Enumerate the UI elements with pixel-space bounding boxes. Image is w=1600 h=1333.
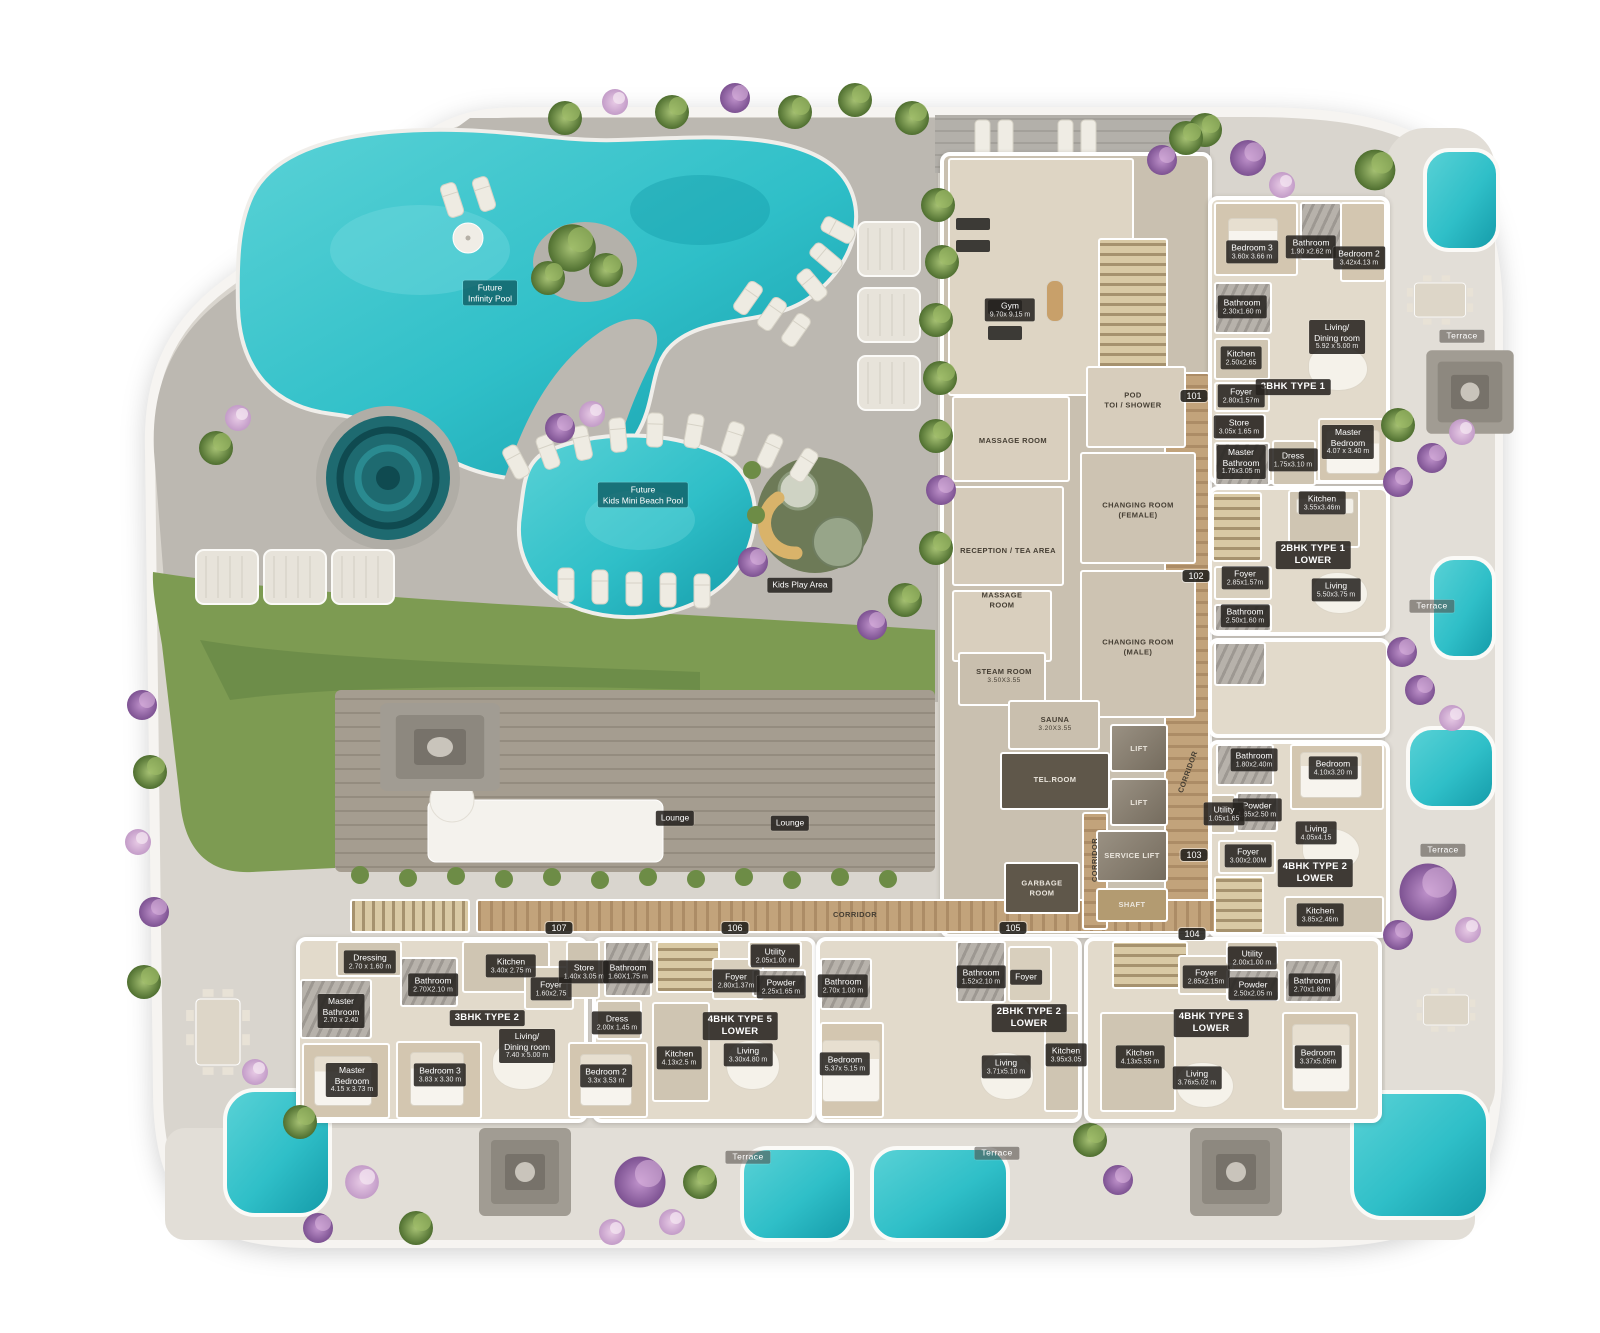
label-u3-bath: Bathroom1.80x2.40m — [1231, 748, 1278, 771]
label-u3-kitchen: Kitchen3.85x2.46m — [1297, 903, 1344, 926]
gym-equipment — [988, 326, 1022, 340]
label-u7-kitchen: Kitchen4.13x5.55 m — [1116, 1045, 1165, 1068]
pool-island — [533, 222, 637, 302]
label-u3-utility: Utility1.05x1.65 — [1204, 802, 1245, 825]
u5-stairs — [656, 941, 720, 993]
label-u7-bedroom: Bedroom3.37x5.05m — [1295, 1045, 1342, 1068]
label-unit-3bhk-type2: 3BHK TYPE 2 — [450, 1010, 525, 1026]
label-corridor-bottom: CORRIDOR — [833, 910, 877, 920]
label-lift-1: LIFT — [1130, 744, 1147, 754]
label-u1-bath1: Bathroom1.90 x2.62 m — [1286, 235, 1336, 258]
label-steam-room: STEAM ROOM3.50X3.55 — [976, 667, 1032, 685]
label-massage-room-1: MASSAGE ROOM — [979, 436, 1047, 446]
label-sauna: SAUNA3.20X3.55 — [1038, 715, 1071, 733]
label-u5-bedroom2: Bedroom 23.3x 3.53 m — [580, 1064, 632, 1087]
label-u5-bath1: Bathroom1.60X1.75 m — [603, 960, 653, 983]
label-tel-room: TEL.ROOM — [1034, 775, 1077, 785]
u3-stairs — [1214, 876, 1264, 934]
u2-stairs — [1212, 492, 1262, 562]
gym-equipment — [956, 218, 990, 230]
label-u7-foyer: Foyer2.85x2.15m — [1183, 965, 1230, 988]
label-u6-foyer: Foyer — [1010, 970, 1042, 985]
badge-102: 102 — [1182, 570, 1209, 582]
label-u2-kitchen: Kitchen3.55x3.46m — [1299, 491, 1346, 514]
label-u5-foyer: Foyer2.80x1.37m — [713, 969, 760, 992]
label-u4-bedroom3: Bedroom 33.83 x 3.30 m — [414, 1063, 466, 1086]
label-terrace-r1: Terrace — [1409, 600, 1454, 613]
label-u3-bedroom: Bedroom4.10x3.20 m — [1309, 756, 1358, 779]
badge-106: 106 — [721, 922, 748, 934]
label-u4-living: Living/ Dining room7.40 x 5.00 m — [499, 1029, 555, 1063]
label-reception: RECEPTION / TEA AREA — [960, 546, 1056, 556]
label-u1-kitchen: Kitchen2.50x2.65 — [1221, 346, 1262, 369]
label-u1-master-bath: Master Bathroom1.75x3.05 m — [1217, 445, 1266, 479]
label-kids-play-area: Kids Play Area — [767, 578, 832, 593]
badge-105: 105 — [999, 922, 1026, 934]
label-u7-powder: Powder2.50x2.05 m — [1229, 977, 1278, 1000]
label-unit-2bhk-type1-lower: 2BHK TYPE 1 LOWER — [1276, 541, 1351, 569]
label-garbage: GARBAGE ROOM — [1021, 878, 1062, 898]
label-u7-living: Living3.76x5.02 m — [1173, 1066, 1222, 1089]
label-u1-foyer: Foyer2.80x1.57m — [1218, 384, 1265, 407]
badge-101: 101 — [1180, 390, 1207, 402]
label-u4-master-bath: Master Bathroom2.70 x 2.40 — [318, 994, 365, 1028]
label-changing-female: CHANGING ROOM (FEMALE) — [1102, 500, 1173, 520]
badge-104: 104 — [1178, 928, 1205, 940]
label-u4-dressing: Dressing2.70 x 1.60 m — [344, 950, 396, 973]
label-u5-store: Store1.40x 3.05 m — [559, 960, 609, 983]
label-lift-2: LIFT — [1130, 798, 1147, 808]
label-u1-bedroom2: Bedroom 23.42x4.13 m — [1333, 246, 1385, 269]
label-u1-living: Living/ Dining room5.92 x 5.00 m — [1309, 320, 1365, 354]
label-u2-living: Living5.50x3.75 m — [1312, 578, 1361, 601]
label-unit-2bhk-type2-lower: 2BHK TYPE 2 LOWER — [992, 1004, 1067, 1032]
label-u5-powder: Powder2.25x1.65 m — [757, 975, 806, 998]
label-infinity-pool: Future Infinity Pool — [463, 280, 517, 305]
u4-stairs — [350, 899, 470, 933]
u3-bath-a — [1214, 642, 1266, 686]
label-u5-dress: Dress2.00x 1.45 m — [592, 1011, 642, 1034]
label-u6-bath2: Bathroom1.52x2.10 m — [957, 965, 1006, 988]
badge-107: 107 — [545, 922, 572, 934]
label-u7-bath: Bathroom2.70x1.80m — [1289, 973, 1336, 996]
label-u6-living: Living3.71x5.10 m — [982, 1055, 1031, 1078]
label-u1-store: Store3.05x 1.65 m — [1214, 415, 1264, 438]
label-u7-utility: Utility2.00x1.00 m — [1228, 946, 1277, 969]
label-unit-3bhk-type1: 3BHK TYPE 1 — [1256, 379, 1331, 395]
label-terrace-r2: Terrace — [1420, 844, 1465, 857]
reception-tea-area — [952, 486, 1064, 586]
label-unit-4bhk-type2-lower: 4BHK TYPE 2 LOWER — [1278, 859, 1353, 887]
label-terrace-b1: Terrace — [725, 1151, 770, 1164]
label-shaft: SHAFT — [1119, 900, 1146, 910]
label-gym: Gym9.70x 9.15 m — [985, 298, 1035, 321]
label-service-lift: SERVICE LIFT — [1104, 851, 1160, 861]
label-corridor-service: CORRIDOR — [1090, 838, 1100, 882]
label-terrace-tr: Terrace — [1439, 330, 1484, 343]
label-kids-pool: Future Kids Mini Beach Pool — [598, 482, 688, 507]
label-u5-utility: Utility2.05x1.00 m — [751, 944, 800, 967]
label-u4-bath: Bathroom2.70X2.10 m — [408, 973, 458, 996]
gym-equipment — [956, 240, 990, 252]
label-u1-bedroom3: Bedroom 33.60x 3.66 m — [1226, 240, 1278, 263]
label-u2-foyer: Foyer2.85x1.57m — [1222, 566, 1269, 589]
u7-stairs — [1112, 941, 1188, 989]
label-lounge-1: Lounge — [656, 811, 694, 826]
label-u5-kitchen: Kitchen4.13x2.5 m — [657, 1046, 702, 1069]
label-u1-bath2: Bathroom2.30x1.60 m — [1218, 295, 1267, 318]
u1-bedroom2 — [1340, 202, 1386, 282]
label-u4-master-bed: Master Bedroom4.15 x 3.73 m — [326, 1063, 378, 1097]
label-pod: POD TOI / SHOWER — [1104, 390, 1161, 410]
label-u1-master-bed: Master Bedroom4.07 x 3.40 m — [1322, 425, 1374, 459]
label-u1-dress: Dress1.75x3.10 m — [1269, 448, 1318, 471]
label-u6-bedroom: Bedroom5.37x 5.15 m — [820, 1052, 870, 1075]
label-u4-kitchen: Kitchen3.40x 2.75 m — [486, 954, 536, 977]
label-massage-room-2: MASSAGE ROOM — [982, 590, 1023, 610]
label-changing-male: CHANGING ROOM (MALE) — [1102, 637, 1173, 657]
play-sphere — [813, 517, 863, 567]
floor-plan: Future Infinity Pool Future Kids Mini Be… — [0, 0, 1600, 1333]
label-unit-4bhk-type5-lower: 4BHK TYPE 5 LOWER — [703, 1012, 778, 1040]
label-u5-living: Living3.30x4.80 m — [724, 1043, 773, 1066]
gym-bench — [1046, 280, 1064, 322]
label-u6-bath: Bathroom2.70x 1.00 m — [818, 974, 868, 997]
label-unit-4bhk-type3-lower: 4BHK TYPE 3 LOWER — [1174, 1009, 1249, 1037]
label-u2-bath: Bathroom2.50x1.60 m — [1221, 604, 1270, 627]
label-u6-kitchen: Kitchen3.95x3.05 — [1046, 1043, 1087, 1066]
badge-103: 103 — [1180, 849, 1207, 861]
label-u3-living: Living4.05x4.15 — [1296, 821, 1337, 844]
label-lounge-2: Lounge — [771, 816, 809, 831]
label-terrace-b2: Terrace — [974, 1147, 1019, 1160]
label-u3-foyer: Foyer3.00x2.00M — [1225, 844, 1272, 867]
